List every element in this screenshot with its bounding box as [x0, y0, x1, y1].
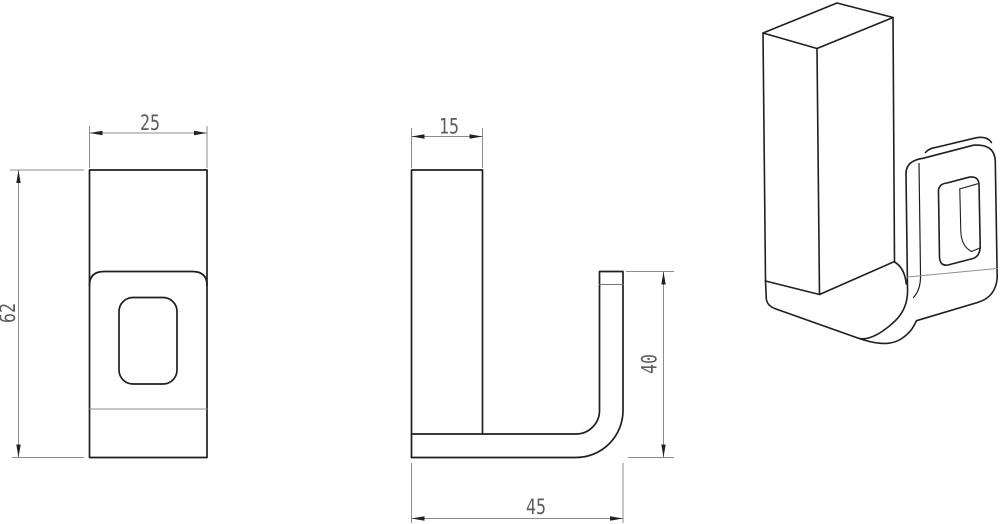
iso-base-and-plate-silhouette: [766, 145, 998, 343]
dim-base-length-lines: [412, 463, 624, 523]
dim-height-lines: [10, 170, 84, 458]
dim-depth: 15: [412, 115, 483, 169]
dim-height: 62: [0, 170, 84, 458]
dim-height-label: 62: [0, 303, 20, 323]
front-view-hook-plate-top-arc: [90, 272, 208, 286]
dim-hook-height-label: 40: [638, 354, 662, 374]
dim-base-length: 45: [412, 463, 624, 523]
iso-prism-bottom-edges: [766, 262, 895, 295]
side-view-hook-profile: [412, 272, 624, 458]
iso-plate-corner-tangent-edge: [914, 164, 921, 298]
front-view-outline: [90, 170, 208, 458]
dim-base-length-label: 45: [526, 495, 546, 519]
iso-view: [763, 3, 997, 343]
dimensions: 25 62 15 40 45: [0, 111, 674, 523]
dim-width-label: 25: [140, 111, 160, 135]
dim-hook-height: 40: [626, 272, 674, 458]
technical-drawing-canvas: 25 62 15 40 45: [0, 0, 1000, 524]
iso-prism-right-edge: [893, 18, 895, 262]
iso-plate-left-edge-bend: [860, 173, 908, 339]
front-view: [90, 170, 208, 458]
front-view-hole: [119, 298, 177, 385]
iso-inner-bend-curve: [895, 262, 907, 284]
iso-prism-front-edge: [817, 49, 820, 295]
iso-prism-top-face: [763, 3, 893, 49]
side-view-wall-plate-outline: [412, 170, 483, 458]
iso-hole-inner-wall-edges: [960, 184, 981, 252]
dim-depth-label: 15: [439, 115, 459, 139]
dim-width: 25: [90, 111, 208, 168]
side-view: [412, 170, 624, 458]
iso-prism-left-edge: [763, 33, 766, 281]
